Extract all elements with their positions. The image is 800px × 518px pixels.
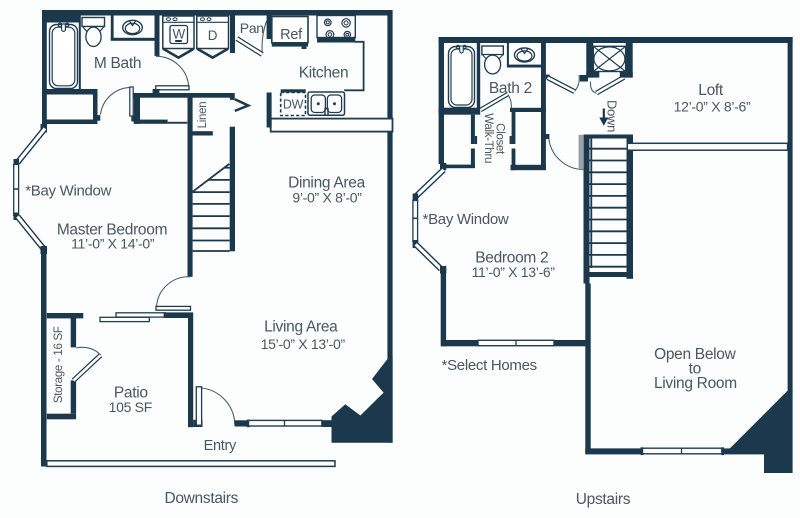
svg-text:Bath 2: Bath 2	[489, 80, 532, 97]
svg-text:Closet: Closet	[493, 123, 505, 155]
svg-text:Kitchen: Kitchen	[299, 65, 349, 82]
svg-text:*Bay Window: *Bay Window	[25, 183, 111, 200]
svg-text:D: D	[208, 28, 218, 43]
svg-text:Linen: Linen	[197, 102, 209, 129]
svg-text:DW: DW	[283, 98, 304, 112]
svg-text:*Select Homes: *Select Homes	[442, 357, 537, 374]
svg-text:Walk-Thru: Walk-Thru	[482, 113, 494, 163]
svg-text:Living Area: Living Area	[264, 319, 338, 336]
svg-text:Pan: Pan	[240, 20, 264, 36]
svg-text:9’-0” X 8’-0”: 9’-0” X 8’-0”	[292, 190, 362, 206]
svg-text:Living Room: Living Room	[654, 375, 737, 392]
svg-text:Storage - 16 SF: Storage - 16 SF	[53, 326, 65, 403]
svg-text:M Bath: M Bath	[94, 55, 141, 72]
svg-text:105 SF: 105 SF	[109, 399, 152, 415]
svg-text:Upstairs: Upstairs	[576, 491, 631, 508]
svg-text:Loft: Loft	[698, 82, 724, 99]
svg-text:Downstairs: Downstairs	[164, 490, 238, 507]
svg-text:Entry: Entry	[204, 438, 237, 454]
svg-text:15’-0” X 13’-0”: 15’-0” X 13’-0”	[261, 336, 346, 352]
svg-text:Down: Down	[605, 100, 620, 132]
svg-text:11’-0” X 14’-0”: 11’-0” X 14’-0”	[71, 236, 155, 252]
svg-text:Ref: Ref	[280, 27, 303, 43]
svg-text:11’-0” X 13’-6”: 11’-0” X 13’-6”	[472, 264, 556, 280]
svg-text:*Bay Window: *Bay Window	[423, 211, 509, 228]
svg-text:W: W	[172, 27, 185, 42]
svg-text:12’-0” X 8’-6”: 12’-0” X 8’-6”	[674, 99, 751, 115]
